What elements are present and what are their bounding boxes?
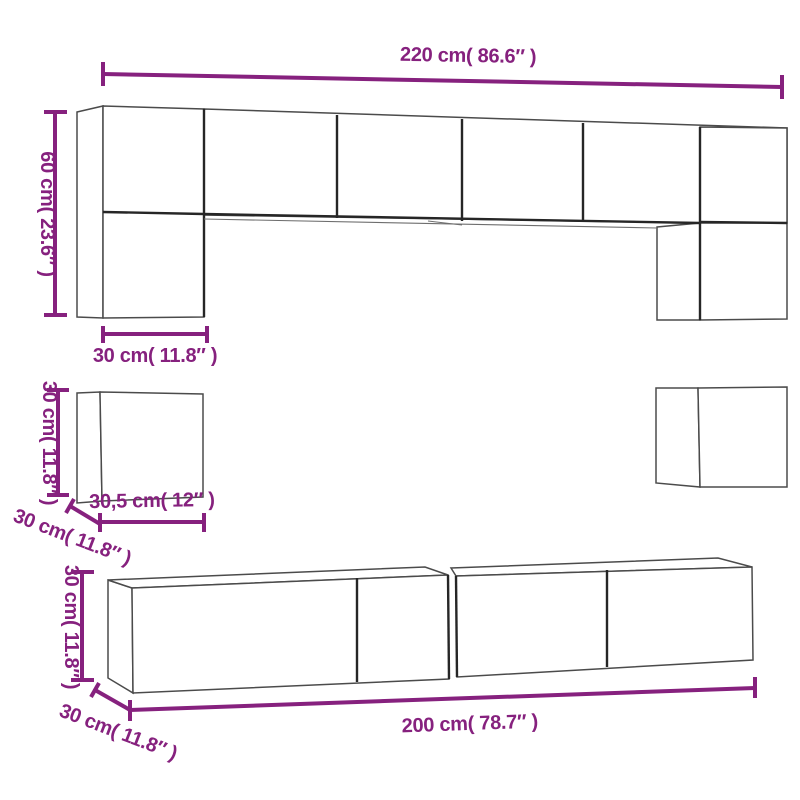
top-right-cabinet-side-face (657, 223, 700, 320)
top-right-cabinet-bottom-square (700, 223, 787, 320)
tv-stand-side-face (108, 580, 133, 693)
top-right-cabinet-mid-divider (700, 222, 787, 223)
dimension-tall-cabinet-width: 30 cm( 11.8″ ) (93, 326, 217, 367)
dimension-line (130, 688, 755, 710)
diagram-canvas: 220 cm( 86.6″ ) 60 cm( 23.6″ ) 30 cm( 11… (0, 0, 800, 800)
wall-cube-right-front-face (698, 387, 787, 487)
tv-stand-left-unit-right-edge (448, 575, 449, 679)
top-right-cabinet-top-square (700, 127, 787, 223)
dimension-cube-height: 30 cm( 11.8″ ) (38, 381, 69, 505)
tv-stand-right-front-face (456, 567, 753, 677)
dimension-cube-width: 30,5 cm( 12″ ) (89, 489, 215, 532)
dimension-label-stand-width: 200 cm( 78.7″ ) (401, 711, 538, 738)
dimension-label-top-total-width: 220 cm( 86.6″ ) (400, 44, 537, 68)
tv-stand-right-unit-left-edge (456, 576, 457, 677)
wall-cube-left (77, 392, 203, 503)
dimension-label-cube-depth: 30 cm( 11.8″ ) (10, 505, 134, 570)
furniture-dimension-diagram: 220 cm( 86.6″ ) 60 cm( 23.6″ ) 30 cm( 11… (0, 0, 800, 800)
dimension-label-tall-cabinet-width: 30 cm( 11.8″ ) (93, 345, 217, 367)
dimension-tall-cabinet-height: 60 cm( 23.6″ ) (36, 112, 67, 315)
dimension-line (95, 690, 130, 710)
dimension-label-stand-height: 30 cm( 11.8″ ) (60, 565, 82, 689)
wall-cube-right-side-face (656, 388, 700, 487)
dimension-line (103, 74, 782, 87)
dimension-label-cube-height: 30 cm( 11.8″ ) (38, 381, 60, 505)
row-bottom-joint-notch (428, 221, 462, 225)
top-left-cabinet-side-face (77, 106, 103, 318)
wall-unit-top (77, 106, 787, 320)
wall-cube-right (656, 387, 787, 487)
dimension-stand-height: 30 cm( 11.8″ ) (60, 565, 94, 689)
dimension-label-tall-cabinet-height: 60 cm( 23.6″ ) (36, 151, 58, 276)
wall-cube-left-side-face (77, 392, 102, 503)
dimension-stand-depth: 30 cm( 11.8″ ) (56, 683, 180, 765)
wall-cube-left-front-face (100, 392, 203, 501)
tv-stand-left-front-face (132, 575, 449, 693)
dimension-label-cube-width: 30,5 cm( 12″ ) (89, 489, 215, 513)
tv-stand (108, 558, 753, 693)
dimension-top-total-width: 220 cm( 86.6″ ) (103, 44, 782, 99)
